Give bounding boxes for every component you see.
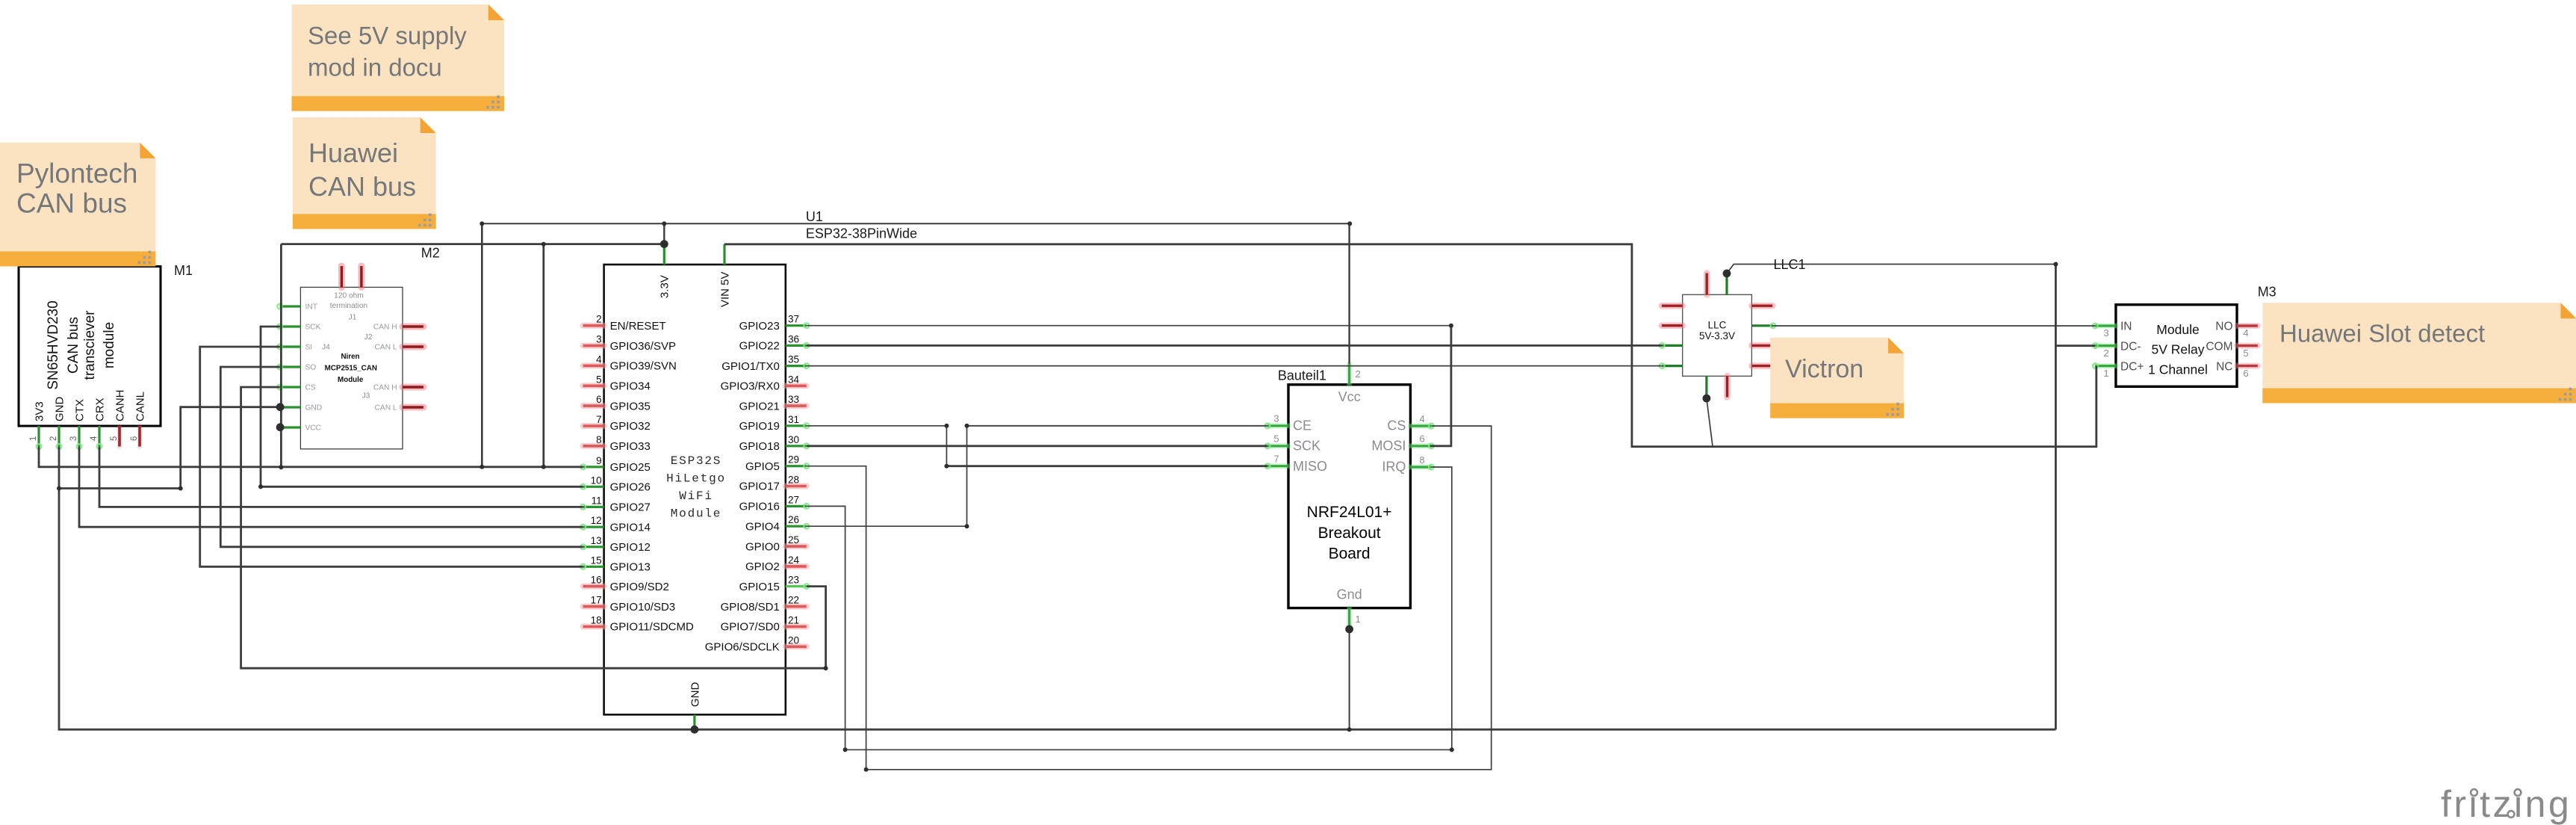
svg-text:GPIO15: GPIO15 — [739, 581, 780, 593]
svg-text:23: 23 — [788, 575, 799, 586]
svg-text:ESP32S: ESP32S — [671, 454, 721, 468]
svg-text:fritzing: fritzing — [2441, 783, 2572, 825]
svg-text:J4: J4 — [322, 343, 330, 351]
svg-text:GPIO2: GPIO2 — [745, 560, 780, 573]
svg-text:GPIO16: GPIO16 — [739, 501, 780, 513]
svg-text:transciever: transciever — [82, 310, 98, 380]
svg-text:GPIO17: GPIO17 — [739, 481, 780, 493]
svg-text:WiFi: WiFi — [679, 489, 713, 503]
svg-text:1: 1 — [1356, 614, 1361, 625]
svg-text:GND: GND — [305, 404, 323, 412]
svg-text:mod in docu: mod in docu — [308, 54, 442, 81]
svg-text:CAN L: CAN L — [375, 404, 397, 412]
svg-text:GPIO36/SVP: GPIO36/SVP — [610, 340, 676, 353]
svg-text:LLC1: LLC1 — [1774, 257, 1806, 272]
svg-text:GPIO27: GPIO27 — [610, 501, 651, 514]
svg-text:Module: Module — [671, 507, 721, 521]
svg-text:LLC: LLC — [1708, 320, 1727, 331]
svg-text:5V-3.3V: 5V-3.3V — [1699, 330, 1735, 342]
svg-text:Pylontech: Pylontech — [16, 158, 138, 189]
svg-text:2: 2 — [1356, 368, 1361, 380]
svg-text:CAN bus: CAN bus — [16, 188, 127, 219]
svg-text:GPIO8/SD1: GPIO8/SD1 — [721, 601, 780, 614]
svg-text:1: 1 — [29, 436, 38, 441]
svg-text:GPIO3/RX0: GPIO3/RX0 — [721, 380, 780, 393]
svg-text:DC+: DC+ — [2120, 361, 2144, 374]
svg-text:GPIO23: GPIO23 — [739, 320, 780, 333]
svg-text:GPIO11/SDCMD: GPIO11/SDCMD — [610, 621, 694, 634]
svg-text:GPIO6/SDCLK: GPIO6/SDCLK — [705, 641, 780, 654]
svg-text:Huawei: Huawei — [308, 137, 398, 168]
svg-text:CAN bus: CAN bus — [66, 317, 81, 374]
svg-text:13: 13 — [591, 535, 602, 546]
svg-text:10: 10 — [591, 475, 602, 486]
svg-text:1: 1 — [2103, 368, 2108, 379]
svg-text:CTX: CTX — [74, 399, 87, 421]
svg-text:termination: termination — [330, 302, 367, 310]
svg-text:SCK: SCK — [305, 324, 321, 332]
svg-text:GND: GND — [54, 397, 66, 422]
svg-text:GPIO13: GPIO13 — [610, 561, 651, 574]
svg-text:35: 35 — [788, 354, 799, 365]
svg-text:9: 9 — [596, 455, 602, 466]
svg-text:M3: M3 — [2258, 285, 2276, 300]
svg-text:CRX: CRX — [94, 398, 107, 421]
svg-text:36: 36 — [788, 333, 799, 344]
svg-text:ESP32-38PinWide: ESP32-38PinWide — [806, 226, 917, 241]
svg-text:SCK: SCK — [1293, 439, 1320, 454]
svg-text:4: 4 — [1419, 413, 1424, 424]
svg-text:SO: SO — [305, 364, 317, 372]
svg-text:GPIO4: GPIO4 — [745, 520, 780, 533]
svg-text:GPIO33: GPIO33 — [610, 440, 651, 453]
svg-text:MOSI: MOSI — [1371, 439, 1406, 454]
svg-text:2: 2 — [49, 436, 58, 441]
svg-text:37: 37 — [788, 314, 799, 325]
svg-text:26: 26 — [788, 514, 799, 525]
svg-text:CAN H: CAN H — [373, 384, 397, 392]
svg-text:IRQ: IRQ — [1382, 460, 1406, 475]
svg-text:GPIO21: GPIO21 — [739, 400, 780, 412]
svg-text:6: 6 — [1419, 433, 1424, 445]
svg-text:GPIO14: GPIO14 — [610, 521, 651, 534]
svg-text:COM: COM — [2206, 341, 2232, 353]
svg-text:NRF24L01+: NRF24L01+ — [1307, 504, 1392, 521]
svg-text:3V3: 3V3 — [34, 401, 46, 421]
svg-text:CANH: CANH — [114, 389, 127, 421]
svg-text:GPIO19: GPIO19 — [739, 420, 780, 433]
svg-text:Huawei Slot detect: Huawei Slot detect — [2279, 320, 2485, 347]
svg-text:GPIO25: GPIO25 — [610, 461, 651, 474]
svg-text:J2: J2 — [364, 333, 373, 342]
svg-text:GPIO18: GPIO18 — [739, 440, 780, 453]
svg-text:DC-: DC- — [2120, 341, 2141, 353]
svg-text:120 ohm: 120 ohm — [334, 291, 364, 300]
svg-text:EN/RESET: EN/RESET — [610, 320, 666, 333]
svg-text:5: 5 — [2243, 347, 2248, 359]
svg-text:GPIO34: GPIO34 — [610, 380, 651, 393]
svg-text:Niren: Niren — [341, 353, 359, 361]
svg-text:CAN L: CAN L — [375, 344, 397, 352]
svg-text:GPIO9/SD2: GPIO9/SD2 — [610, 581, 669, 593]
svg-text:NO: NO — [2215, 321, 2232, 333]
svg-text:SN65HVD230: SN65HVD230 — [46, 300, 61, 389]
svg-text:11: 11 — [592, 495, 602, 506]
svg-text:GPIO22: GPIO22 — [739, 340, 780, 353]
svg-text:Bauteil1: Bauteil1 — [1278, 368, 1326, 383]
svg-text:GPIO5: GPIO5 — [745, 460, 780, 473]
svg-text:Vcc: Vcc — [1338, 389, 1361, 404]
svg-text:Board: Board — [1329, 546, 1371, 563]
svg-text:31: 31 — [788, 414, 799, 425]
svg-text:Module: Module — [338, 376, 364, 384]
svg-text:MCP2515_CAN: MCP2515_CAN — [325, 365, 377, 373]
svg-text:3.3V: 3.3V — [659, 275, 671, 298]
svg-text:GPIO39/SVN: GPIO39/SVN — [610, 360, 677, 373]
svg-text:GPIO35: GPIO35 — [610, 400, 651, 412]
svg-text:GPIO26: GPIO26 — [610, 481, 651, 494]
svg-text:4: 4 — [2243, 327, 2248, 339]
svg-text:module: module — [102, 322, 117, 368]
svg-text:GND: GND — [689, 682, 702, 708]
svg-text:IN: IN — [2120, 321, 2132, 333]
svg-text:CS: CS — [305, 384, 316, 392]
svg-text:INT: INT — [305, 303, 317, 312]
svg-text:SI: SI — [305, 344, 313, 352]
svg-text:GPIO1/TX0: GPIO1/TX0 — [721, 360, 780, 373]
svg-text:2: 2 — [2103, 347, 2108, 359]
svg-text:1 Channel: 1 Channel — [2148, 362, 2208, 377]
svg-text:7: 7 — [1273, 454, 1279, 465]
svg-text:GPIO32: GPIO32 — [610, 420, 651, 433]
svg-text:J1: J1 — [349, 313, 357, 321]
svg-text:5: 5 — [1273, 433, 1279, 445]
svg-text:GPIO7/SD0: GPIO7/SD0 — [721, 621, 780, 634]
svg-text:Victron: Victron — [1785, 355, 1863, 383]
svg-text:27: 27 — [788, 494, 799, 505]
svg-text:Breakout: Breakout — [1318, 525, 1381, 542]
svg-text:M2: M2 — [421, 246, 440, 261]
svg-text:VCC: VCC — [305, 424, 322, 433]
svg-text:M1: M1 — [174, 263, 193, 278]
svg-text:29: 29 — [788, 454, 799, 466]
svg-text:6: 6 — [2243, 368, 2248, 379]
svg-text:See 5V supply: See 5V supply — [308, 22, 467, 49]
svg-text:CAN bus: CAN bus — [308, 171, 416, 202]
svg-text:U1: U1 — [806, 209, 823, 224]
svg-text:8: 8 — [1419, 454, 1424, 466]
svg-text:12: 12 — [591, 515, 602, 526]
svg-text:NC: NC — [2216, 361, 2232, 374]
svg-text:4: 4 — [90, 436, 99, 441]
svg-text:GPIO10/SD3: GPIO10/SD3 — [610, 601, 676, 614]
svg-text:5V Relay: 5V Relay — [2151, 342, 2204, 357]
svg-text:30: 30 — [788, 434, 799, 445]
svg-text:3: 3 — [69, 436, 78, 441]
svg-text:CE: CE — [1293, 418, 1312, 433]
svg-text:CS: CS — [1387, 418, 1406, 433]
svg-text:3: 3 — [2103, 327, 2108, 339]
svg-text:CANL: CANL — [134, 392, 147, 421]
svg-text:HiLetgo: HiLetgo — [666, 472, 726, 486]
svg-text:CAN H: CAN H — [373, 324, 397, 332]
svg-text:J3: J3 — [362, 392, 370, 401]
svg-text:MISO: MISO — [1293, 459, 1327, 474]
svg-text:VIN 5V: VIN 5V — [719, 271, 732, 307]
svg-text:Module: Module — [2156, 322, 2199, 337]
svg-text:GPIO0: GPIO0 — [745, 540, 780, 553]
svg-text:15: 15 — [591, 554, 602, 566]
svg-text:Gnd: Gnd — [1337, 587, 1362, 602]
svg-text:GPIO12: GPIO12 — [610, 541, 651, 554]
svg-text:3: 3 — [1273, 413, 1279, 424]
